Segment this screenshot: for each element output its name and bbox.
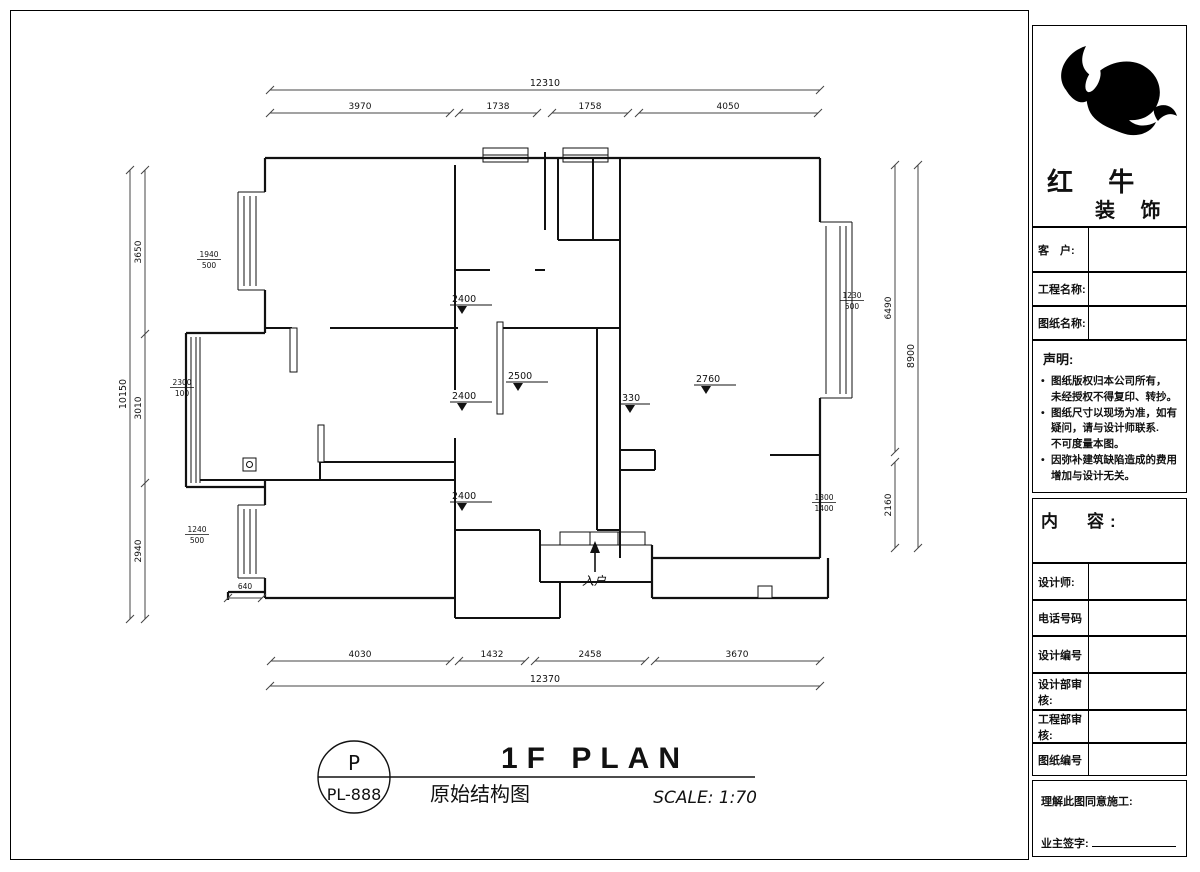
thin-partition bbox=[497, 322, 503, 414]
wall-stub bbox=[290, 328, 297, 372]
dim-bottom-seg1: 4030 bbox=[349, 650, 372, 660]
window-width: 1230 bbox=[842, 291, 861, 300]
project-value bbox=[1089, 273, 1186, 305]
project-label: 工程名称: bbox=[1033, 273, 1089, 305]
entry-sill bbox=[540, 532, 652, 545]
marker-value: 2760 bbox=[696, 374, 720, 385]
marker-value: 2500 bbox=[508, 371, 532, 382]
eng-review-value bbox=[1089, 711, 1186, 742]
dim-left-seg1: 3650 bbox=[134, 240, 144, 263]
drawing-value bbox=[1089, 307, 1186, 339]
top-window-2 bbox=[563, 148, 608, 162]
row-phone: 电话号码 bbox=[1032, 600, 1187, 636]
phone-label: 电话号码 bbox=[1033, 601, 1089, 635]
entrance-arrow bbox=[590, 541, 600, 553]
window-label: 1240 500 bbox=[185, 525, 209, 545]
design-no-label: 设计编号 bbox=[1033, 637, 1089, 672]
eng-review-label: 工程部审核: bbox=[1033, 711, 1089, 742]
window-width: 1240 bbox=[187, 525, 206, 534]
dimension-lines bbox=[126, 86, 922, 690]
wall bbox=[186, 158, 828, 600]
marker-value: 2400 bbox=[452, 491, 476, 502]
level-marker: 2400 bbox=[450, 294, 492, 314]
dim-right-seg2: 2160 bbox=[884, 493, 894, 516]
statement-box: 声明: •图纸版权归本公司所有， 未经授权不得复印、转抄。 •图纸尺寸以现场为准… bbox=[1032, 340, 1187, 493]
drawing-label: 图纸名称: bbox=[1033, 307, 1089, 339]
title-bubble-number: PL-888 bbox=[327, 785, 382, 804]
bullet-dot: • bbox=[1041, 374, 1051, 390]
dim-left-seg2: 3010 bbox=[134, 396, 144, 419]
window-width: 2300 bbox=[172, 378, 191, 387]
level-markers: 2400 2500 2400 330 2760 2400 bbox=[450, 294, 736, 511]
logo-box: 红 牛 装 饰 bbox=[1032, 25, 1187, 227]
row-eng-review: 工程部审核: bbox=[1032, 710, 1187, 743]
customer-label: 客 户: bbox=[1033, 228, 1089, 271]
window-sill: 1400 bbox=[814, 504, 833, 513]
design-review-value bbox=[1089, 674, 1186, 709]
plan-title: 1F PLAN bbox=[501, 742, 689, 775]
row-drawing: 图纸名称: bbox=[1032, 306, 1187, 340]
window-label: 2300 100 bbox=[170, 378, 194, 398]
bullet-dot: • bbox=[1041, 406, 1051, 422]
level-marker: 2400 bbox=[450, 491, 492, 511]
notch bbox=[758, 586, 772, 598]
window-label: 1940 500 bbox=[197, 250, 221, 270]
customer-value bbox=[1089, 228, 1186, 271]
dim-bottom-overall: 12370 bbox=[530, 674, 560, 685]
dim-top-seg3: 1758 bbox=[579, 102, 602, 112]
content-title: 内 容: bbox=[1041, 507, 1186, 532]
sheet-no-value bbox=[1089, 744, 1186, 775]
sheet-no-label: 图纸编号 bbox=[1033, 744, 1089, 775]
window-labels: 1940 500 2300 100 1240 500 1230 500 1300… bbox=[170, 250, 864, 545]
window-width: 1300 bbox=[814, 493, 833, 502]
level-marker: 330 bbox=[620, 393, 650, 413]
owner-signature-label: 业主签字: bbox=[1041, 835, 1186, 851]
dim-top-seg2: 1738 bbox=[487, 102, 510, 112]
window-label: 1300 1400 bbox=[812, 493, 836, 513]
dim-bottom-seg2: 1432 bbox=[481, 650, 504, 660]
window-width: 1940 bbox=[199, 250, 218, 259]
title-bubble-letter: P bbox=[348, 751, 360, 775]
bull-logo-icon bbox=[1061, 46, 1177, 135]
construction-consent-label: 理解此图同意施工: bbox=[1041, 793, 1186, 809]
drawing-title: P PL-888 1F PLAN 原始结构图 SCALE: 1:70 bbox=[318, 741, 757, 813]
window-sill: 500 bbox=[190, 536, 205, 545]
statement-line: •因弥补建筑缺陷造成的费用 bbox=[1041, 453, 1186, 469]
window-sill: 500 bbox=[202, 261, 217, 270]
statement-line: •图纸版权归本公司所有， bbox=[1041, 374, 1186, 390]
signature-line bbox=[1092, 836, 1176, 847]
dim-bottom-seg4: 3670 bbox=[726, 650, 749, 660]
bay-window-left-bottom bbox=[238, 505, 265, 578]
dim-step-640: 640 bbox=[238, 582, 253, 591]
statement-line: 未经授权不得复印、转抄。 bbox=[1041, 390, 1186, 406]
statement-title: 声明: bbox=[1043, 349, 1186, 368]
dim-top-overall: 12310 bbox=[530, 78, 560, 89]
row-sheet-no: 图纸编号 bbox=[1032, 743, 1187, 776]
title-block-panel: 红 牛 装 饰 客 户: 工程名称: 图纸名称: 声明: •图纸版权归本公司所有… bbox=[1028, 10, 1190, 860]
marker-value: 2400 bbox=[452, 391, 476, 402]
dim-right-seg1: 6490 bbox=[884, 296, 894, 319]
entrance-label: 入户 bbox=[582, 574, 607, 588]
phone-value bbox=[1089, 601, 1186, 635]
company-name-sub: 装 饰 bbox=[1095, 194, 1171, 223]
floor-plan-drawing: 12310 3970 1738 1758 4050 4030 1432 2458… bbox=[0, 0, 1030, 872]
statement-line: 疑问，请与设计师联系. bbox=[1041, 421, 1186, 437]
dim-left-seg3: 2940 bbox=[134, 539, 144, 562]
row-design-no: 设计编号 bbox=[1032, 636, 1187, 673]
designer-value bbox=[1089, 564, 1186, 599]
design-no-value bbox=[1089, 637, 1186, 672]
outer-walls bbox=[186, 158, 828, 600]
designer-label: 设计师: bbox=[1033, 564, 1089, 599]
bay-window-left-middle bbox=[191, 337, 200, 483]
company-logo bbox=[1036, 28, 1186, 158]
entrance: 入户 bbox=[582, 541, 607, 588]
dim-top-seg1: 3970 bbox=[349, 102, 372, 112]
sign-box: 理解此图同意施工: 业主签字: bbox=[1032, 780, 1187, 857]
row-customer: 客 户: bbox=[1032, 227, 1187, 272]
row-project: 工程名称: bbox=[1032, 272, 1187, 306]
marker-value: 2400 bbox=[452, 294, 476, 305]
dim-bottom-seg3: 2458 bbox=[579, 650, 602, 660]
level-marker: 2400 bbox=[450, 391, 492, 411]
plan-scale: SCALE: 1:70 bbox=[653, 788, 757, 808]
marker-value: 330 bbox=[622, 393, 640, 404]
level-marker: 2760 bbox=[694, 374, 736, 394]
dim-top-seg4: 4050 bbox=[717, 102, 740, 112]
dim-right-overall: 8900 bbox=[906, 344, 917, 368]
statement-line: •图纸尺寸以现场为准，如有 bbox=[1041, 406, 1186, 422]
level-marker: 2500 bbox=[506, 371, 548, 391]
drawing-sheet: { "titleblock": { "big": "1F PLAN", "cn"… bbox=[0, 0, 1200, 872]
statement-line: 不可度量本图。 bbox=[1041, 437, 1186, 453]
bullet-dot: • bbox=[1041, 453, 1051, 469]
plan-title-cn: 原始结构图 bbox=[430, 782, 530, 806]
door-pivot-box bbox=[243, 458, 256, 471]
wall-stub bbox=[318, 425, 324, 462]
window-sill: 100 bbox=[175, 389, 190, 398]
content-box: 内 容: bbox=[1032, 498, 1187, 563]
row-designer: 设计师: bbox=[1032, 563, 1187, 600]
row-design-review: 设计部审核: bbox=[1032, 673, 1187, 710]
top-window-1 bbox=[483, 148, 528, 162]
design-review-label: 设计部审核: bbox=[1033, 674, 1089, 709]
statement-line: 增加与设计无关。 bbox=[1041, 469, 1186, 485]
window-sill: 500 bbox=[845, 302, 860, 311]
bay-window-left-top bbox=[238, 192, 265, 290]
dim-left-overall: 10150 bbox=[118, 379, 129, 409]
